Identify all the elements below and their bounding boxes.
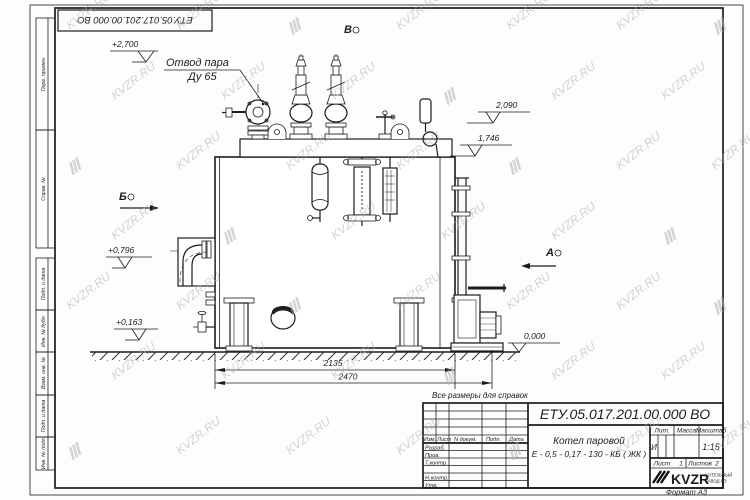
title-block: Все размеры для справок ЕТУ.05.017.201.0… xyxy=(423,391,733,497)
level-text-1746: 1,746 xyxy=(478,133,500,143)
watermark-text: KVZR.RU xyxy=(548,199,598,243)
watermark-text: KVZR.RU xyxy=(108,199,158,243)
steam-outlet-valve xyxy=(222,100,270,139)
watermark-hatch-glyph xyxy=(66,157,84,174)
view-label-a: А xyxy=(521,247,561,269)
safety-valve-1 xyxy=(290,56,312,139)
steam-outlet-text-2: Ду 65 xyxy=(186,71,218,83)
view-text-a: А xyxy=(545,247,554,259)
level-text-2090: 2,090 xyxy=(495,100,518,110)
row-nkontr: Н.контр. xyxy=(425,476,449,482)
lifting-lug-1 xyxy=(268,124,286,139)
sheet-label: Лист xyxy=(653,461,671,468)
watermark-hatch-glyph xyxy=(711,297,729,314)
boiler-body xyxy=(215,157,455,348)
col-data: Дата xyxy=(508,437,524,443)
steam-outlet-text-1: Отвод пара xyxy=(166,57,229,69)
watermark-hatch-glyph xyxy=(661,227,679,244)
format-label: Формат А3 xyxy=(666,488,708,497)
col-list: Лист xyxy=(436,437,452,443)
sheets-label: Листов xyxy=(687,461,712,468)
watermark-text: KVZR.RU xyxy=(63,269,113,313)
drawing-sheet: Перв. примен. Справ. № Подп. и дата Инв.… xyxy=(0,0,750,500)
watermark-text: KVZR.RU xyxy=(708,414,750,458)
side-label-podp-data-2: Подп. и дата xyxy=(41,400,47,433)
mass-label: Масса xyxy=(677,428,697,435)
view-text-v: В xyxy=(344,24,352,36)
watermark-hatch-glyph xyxy=(506,157,524,174)
side-label-podp-data-1: Подп. и дата xyxy=(41,268,47,301)
watermark-text: KVZR.RU xyxy=(658,339,708,383)
view-label-v: В xyxy=(344,24,359,36)
watermark-text: KVZR.RU xyxy=(613,269,663,313)
doc-number: ЕТУ.05.017.201.00.000 ВО xyxy=(540,406,710,422)
ground-line xyxy=(90,352,520,361)
level-mark-0796: +0,796 xyxy=(106,245,152,268)
level-mark-0163: +0,163 xyxy=(114,317,158,340)
watermark-hatch-glyph xyxy=(506,442,524,459)
logo-text: KVZR xyxy=(671,471,709,487)
side-label-inv-dubl: Инв. № дубл. xyxy=(41,315,47,347)
watermark-text: KVZR.RU xyxy=(173,414,223,458)
watermark-text: KVZR.RU xyxy=(108,59,158,103)
col-ndoc: N докум. xyxy=(454,437,477,443)
scale-label: Масштаб xyxy=(696,427,727,435)
watermark-text: KVZR.RU xyxy=(283,414,333,458)
side-column-cells: Перв. примен. Справ. № Подп. и дата Инв.… xyxy=(36,18,55,470)
kvzr-logo: KVZR КОТЕЛЬНЫЙ ЗАВОД РЭ xyxy=(653,471,733,487)
sheet-value: 1 xyxy=(679,461,683,468)
row-razrab: Разраб. xyxy=(425,446,445,452)
watermark-hatch-glyph xyxy=(441,87,459,104)
level-text-0000: 0,000 xyxy=(524,331,546,341)
watermark-text: KVZR.RU xyxy=(708,129,750,173)
side-label-inv-podl: Инв. № подл. xyxy=(41,437,47,469)
side-label-sprav-no: Справ. № xyxy=(41,177,47,201)
level-mark-2700: +2,700 xyxy=(110,39,158,62)
watermark-text: KVZR.RU xyxy=(658,59,708,103)
view-text-b: Б xyxy=(119,191,127,203)
level-mark-1746: 1,746 xyxy=(450,133,512,156)
sheets-value: 2 xyxy=(714,461,719,468)
drain-valve xyxy=(193,311,215,332)
level-mark-2090: 2,090 xyxy=(467,100,530,123)
watermark-text: KVZR.RU xyxy=(548,339,598,383)
feed-pump xyxy=(451,284,506,351)
row-tkontr: Т.контр. xyxy=(425,461,448,467)
lifting-lug-2 xyxy=(391,124,409,139)
watermark-hatch-glyph xyxy=(711,17,729,34)
row-prov: Пров. xyxy=(425,453,440,459)
col-podp: Подп. xyxy=(486,437,501,443)
level-text-0163: +0,163 xyxy=(116,317,143,327)
row-utv: Утв. xyxy=(424,483,438,489)
level-mark-0000: 0,000 xyxy=(504,331,560,352)
level-text-2700: +2,700 xyxy=(112,39,139,49)
lit-value: И xyxy=(651,443,657,452)
side-label-vzam-inv: Взам. инв. № xyxy=(41,357,47,389)
watermark-text: KVZR.RU xyxy=(613,129,663,173)
reference-note: Все размеры для справок xyxy=(432,391,529,400)
watermark-text: KVZR.RU xyxy=(548,59,598,103)
logo-sub1: КОТЕЛЬНЫЙ xyxy=(705,473,733,478)
side-label-perv-primen: Перв. примен. xyxy=(41,57,47,91)
logo-sub2: ЗАВОД РЭ xyxy=(705,479,727,484)
watermark-text: KVZR.RU xyxy=(503,269,553,313)
level-text-0796: +0,796 xyxy=(108,245,135,255)
drawing-canvas: Перв. примен. Справ. № Подп. и дата Инв.… xyxy=(0,0,750,500)
watermark-hatch-glyph xyxy=(66,442,84,459)
watermark-hatch-glyph xyxy=(286,17,304,34)
